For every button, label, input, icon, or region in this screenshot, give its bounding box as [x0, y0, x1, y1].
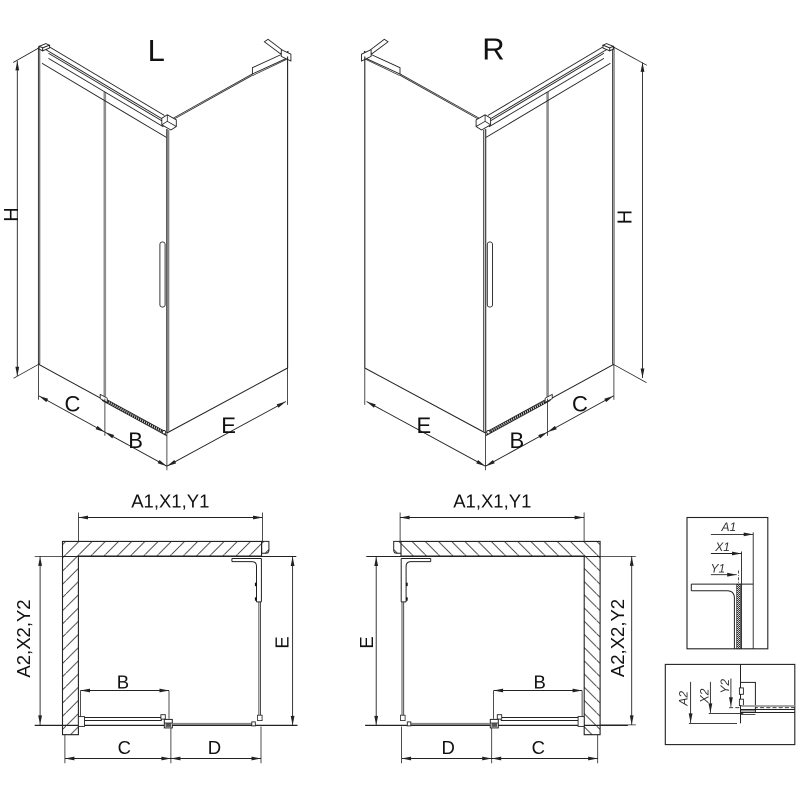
svg-text:A1: A1 [720, 520, 736, 534]
svg-text:B: B [509, 428, 524, 453]
svg-text:C: C [118, 737, 131, 758]
svg-text:E: E [272, 636, 293, 648]
svg-text:B: B [117, 672, 129, 693]
svg-text:C: C [572, 392, 588, 417]
svg-text:D: D [208, 737, 221, 758]
svg-text:B: B [128, 428, 143, 453]
svg-text:A2: A2 [676, 691, 690, 707]
svg-text:A1,X1,Y1: A1,X1,Y1 [453, 491, 531, 512]
svg-text:D: D [442, 737, 455, 758]
svg-text:X2: X2 [698, 688, 712, 704]
svg-text:E: E [356, 636, 377, 648]
svg-text:Y2: Y2 [718, 679, 732, 694]
svg-text:R: R [482, 32, 504, 67]
svg-text:C: C [532, 737, 545, 758]
svg-text:H: H [1, 207, 23, 221]
svg-text:A2,X2,Y2: A2,X2,Y2 [13, 599, 34, 677]
svg-text:A2,X2,Y2: A2,X2,Y2 [607, 599, 628, 677]
svg-text:H: H [615, 210, 637, 224]
svg-text:B: B [534, 672, 546, 693]
svg-text:Y1: Y1 [710, 561, 725, 575]
svg-text:A1,X1,Y1: A1,X1,Y1 [131, 491, 209, 512]
svg-text:E: E [221, 413, 236, 438]
svg-text:X1: X1 [714, 540, 730, 554]
svg-text:E: E [416, 413, 431, 438]
svg-text:L: L [148, 33, 165, 68]
svg-text:C: C [65, 392, 81, 417]
